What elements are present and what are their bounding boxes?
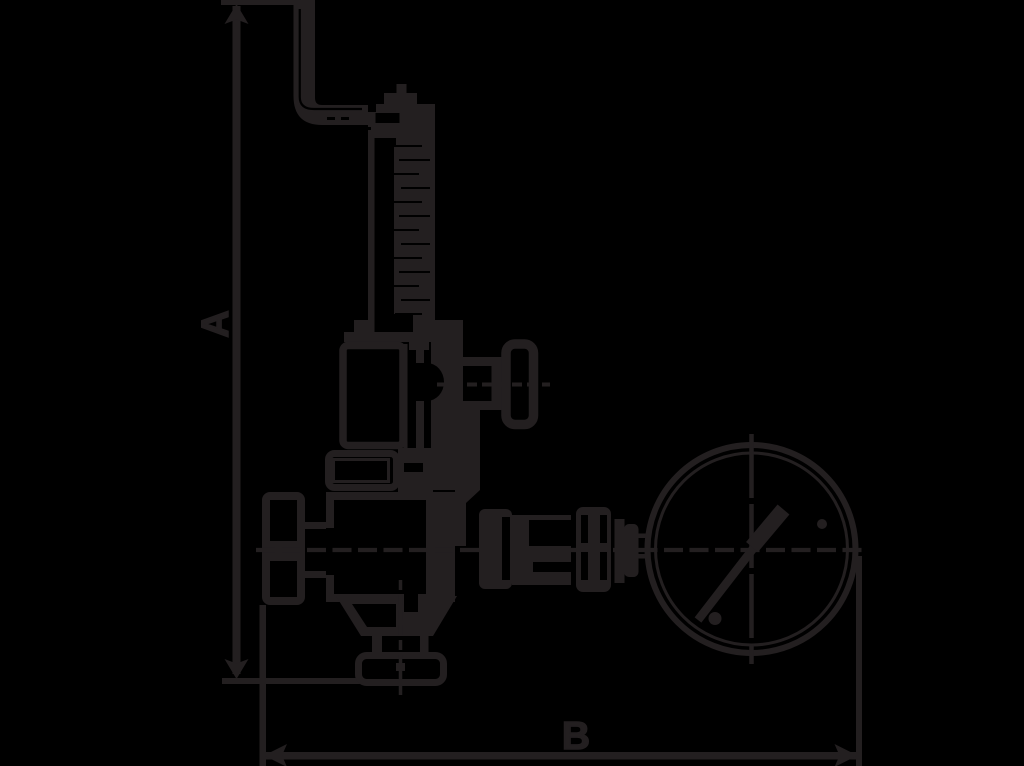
svg-text:A: A [195, 310, 237, 337]
svg-text:B: B [562, 715, 590, 758]
